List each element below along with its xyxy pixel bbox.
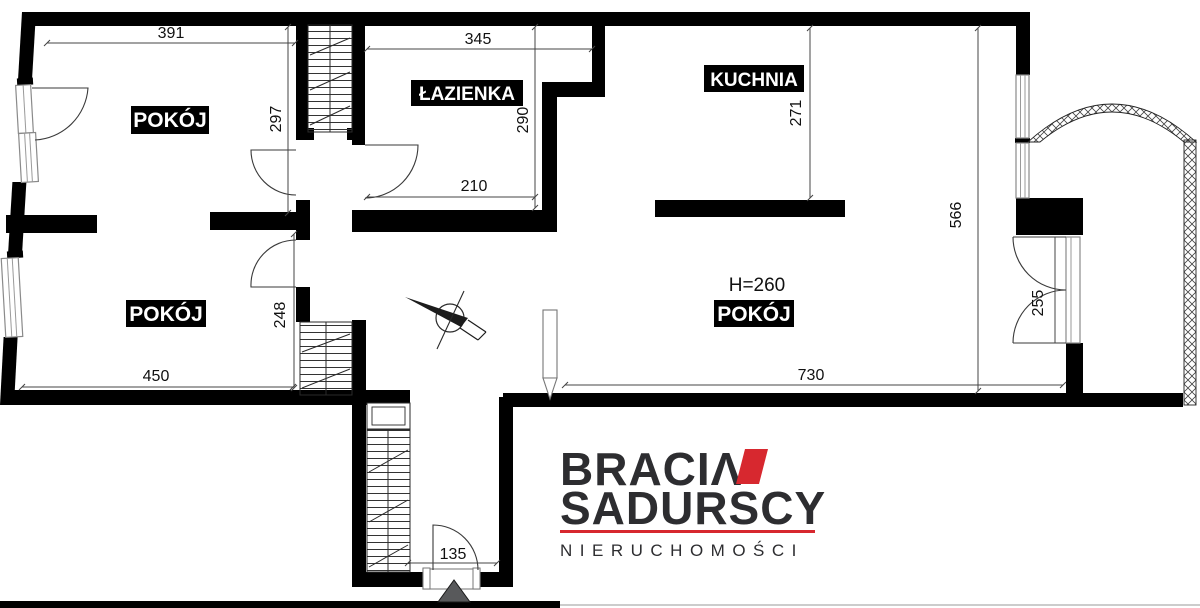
north-arrow-icon — [405, 291, 486, 349]
door-arc-bathroom — [365, 145, 418, 198]
dim-room2-width: 450 — [143, 368, 170, 385]
wardrobe-hall — [300, 322, 352, 395]
windows — [1, 75, 1080, 589]
dim-kitchen-height: 271 — [788, 100, 805, 127]
window-right-1 — [1016, 75, 1029, 138]
cabinet-entrance — [367, 403, 410, 429]
dim-right-height: 566 — [948, 202, 965, 229]
room-label-kuchnia: KUCHNIA — [710, 70, 798, 91]
room-label-pokoj-1: POKÓJ — [133, 108, 207, 132]
wardrobe-top — [308, 25, 352, 132]
logo-brand-line2: SADURSCY — [560, 482, 826, 534]
balcony-arch-wall — [1028, 104, 1196, 405]
room-label-pokoj-3: POKÓJ — [717, 302, 791, 326]
dim-room3-width: 730 — [798, 367, 825, 384]
room-label-lazienka: ŁAZIENKA — [419, 84, 515, 105]
dim-balcony-door: 255 — [1030, 290, 1047, 317]
logo-divider — [560, 530, 815, 533]
door-arc-french-upper — [1013, 237, 1066, 290]
door-arc-balcony-left — [32, 88, 88, 140]
door-arc-room2 — [251, 240, 296, 287]
ceiling-height-note: H=260 — [729, 275, 786, 296]
agency-logo: BRACIΛ SADURSCY NIERUCHOMOŚCI — [560, 443, 826, 560]
dim-bathroom-height: 290 — [515, 107, 532, 134]
door-arc-room1 — [251, 150, 296, 195]
balcony-french-door — [1066, 237, 1080, 343]
dim-room1-height: 297 — [268, 106, 285, 133]
dim-room1-width: 391 — [158, 25, 185, 42]
balcony-door-left — [16, 85, 34, 134]
room-labels: POKÓJ ŁAZIENKA KUCHNIA POKÓJ POKÓJ — [126, 65, 804, 327]
dim-room2-height: 248 — [272, 302, 289, 329]
dim-bathroom-width: 345 — [465, 31, 492, 48]
floor-plan: 391 297 345 290 210 271 566 255 248 450 … — [0, 0, 1200, 608]
dim-bathroom-bottom: 210 — [461, 178, 488, 195]
room-label-pokoj-2: POKÓJ — [129, 302, 203, 326]
open-door-leaf — [543, 310, 557, 399]
window-left-2 — [1, 258, 23, 338]
floor-plan-page: 391 297 345 290 210 271 566 255 248 450 … — [0, 0, 1200, 608]
dim-entrance-width: 135 — [440, 546, 467, 563]
wardrobe-entrance — [367, 430, 410, 572]
logo-tagline: NIERUCHOMOŚCI — [560, 541, 804, 560]
window-right-2 — [1016, 143, 1029, 198]
